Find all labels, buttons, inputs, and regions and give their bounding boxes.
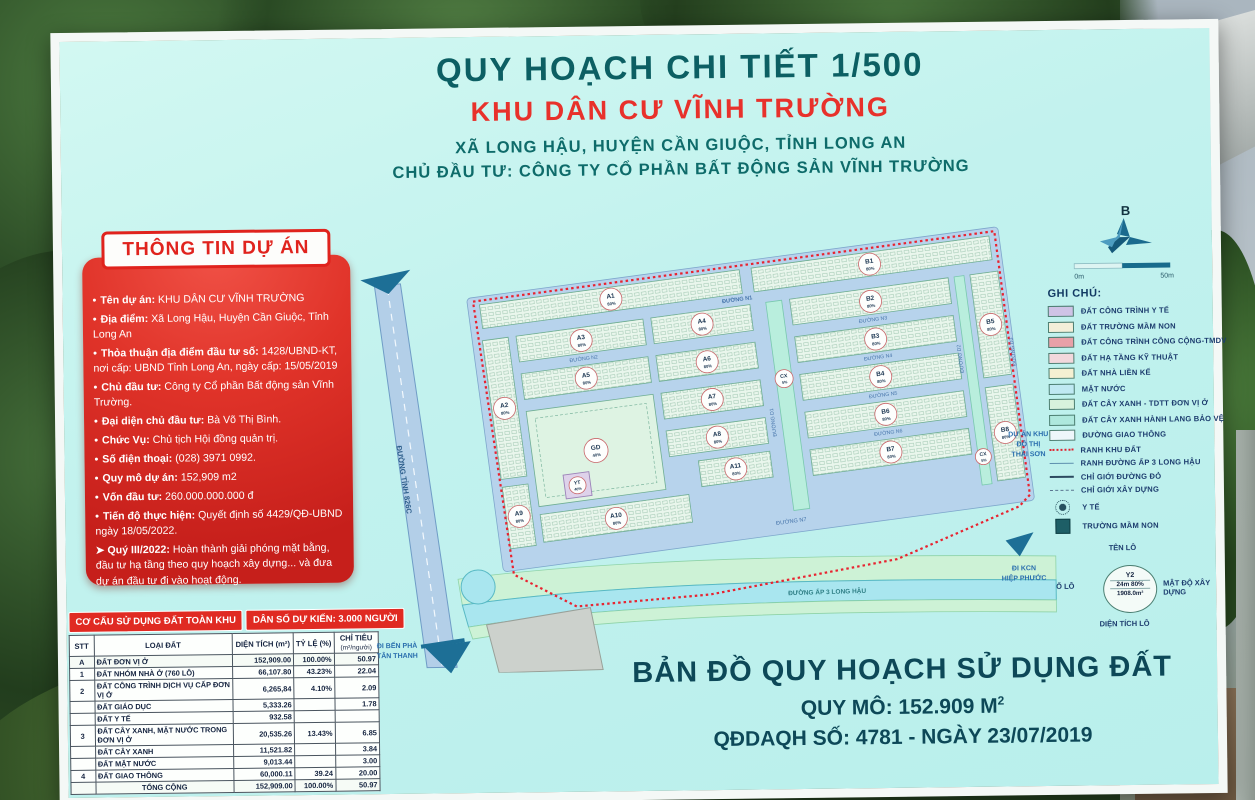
svg-text:CX: CX bbox=[780, 373, 788, 380]
north-and-scale: B 0m 50m bbox=[1059, 200, 1185, 284]
svg-text:A5: A5 bbox=[581, 372, 590, 380]
caption-line1: BẢN ĐỒ QUY HOẠCH SỬ DỤNG ĐẤT bbox=[612, 650, 1192, 690]
bullet-icon: • bbox=[93, 295, 97, 307]
legend-item: ĐẤT TRƯỜNG MẦM NON bbox=[1048, 319, 1233, 332]
info-item: •Địa điểm: Xã Long Hậu, Huyện Cần Giuộc,… bbox=[93, 310, 341, 343]
info-item: •Thỏa thuận địa điểm đầu tư số: 1428/UBN… bbox=[93, 344, 341, 377]
legend-item: RANH ĐƯỜNG ẤP 3 LONG HẬU bbox=[1050, 457, 1235, 468]
svg-text:B7: B7 bbox=[886, 445, 895, 453]
pole-right bbox=[1236, 430, 1255, 800]
bullet-icon: • bbox=[94, 454, 98, 466]
info-item: •Chủ đầu tư: Công ty Cổ phần Bất động sả… bbox=[94, 378, 342, 411]
title-line1: QUY HOẠCH CHI TIẾT 1/500 bbox=[350, 44, 1010, 90]
bullet-icon: • bbox=[95, 511, 99, 523]
legend-title: GHI CHÚ: bbox=[1048, 286, 1233, 300]
svg-text:B1: B1 bbox=[865, 258, 874, 266]
north-arrow-icon bbox=[1100, 218, 1152, 254]
legend-item: CHỈ GIỚI ĐƯỜNG ĐỎ bbox=[1050, 470, 1235, 481]
info-item: •Tiến độ thực hiện: Quyết định số 4429/Q… bbox=[95, 507, 343, 540]
title-line2: KHU DÂN CƯ VĨNH TRƯỜNG bbox=[350, 90, 1010, 129]
title-line3: XÃ LONG HẬU, HUYỆN CẦN GIUỘC, TỈNH LONG … bbox=[351, 132, 1011, 159]
legend-item: ĐẤT NHÀ LIỀN KẾ bbox=[1048, 366, 1233, 379]
north-label: B bbox=[1121, 203, 1131, 218]
svg-text:A9: A9 bbox=[514, 510, 523, 518]
land-table: STT LOẠI ĐẤT DIỆN TÍCH (m²) TỶ LỆ (%) CH… bbox=[69, 631, 381, 795]
svg-text:B3: B3 bbox=[871, 332, 880, 340]
title-line4: CHỦ ĐẦU TƯ: CÔNG TY CỔ PHẦN BẤT ĐỘNG SẢN… bbox=[351, 156, 1011, 183]
bullet-icon: • bbox=[93, 348, 97, 360]
road-arrow-up-icon bbox=[360, 270, 410, 295]
svg-text:A6: A6 bbox=[702, 355, 711, 363]
map-caption: BẢN ĐỒ QUY HOẠCH SỬ DỤNG ĐẤT QUY MÔ: 152… bbox=[612, 650, 1193, 753]
info-item: •Tên dự án: KHU DÂN CƯ VĨNH TRƯỜNG bbox=[93, 291, 341, 309]
legend-item: TRƯỜNG MẦM NON bbox=[1050, 517, 1235, 534]
svg-text:ĐÔ THỊ: ĐÔ THỊ bbox=[1016, 439, 1040, 448]
svg-text:A1: A1 bbox=[606, 293, 615, 301]
legend-item: ĐẤT HẠ TẦNG KỸ THUẬT bbox=[1048, 350, 1233, 363]
table-title-left: CƠ CẤU SỬ DỤNG ĐẤT TOÀN KHU bbox=[68, 610, 243, 633]
land-use-table: CƠ CẤU SỬ DỤNG ĐẤT TOÀN KHU DÂN SỐ DỰ KI… bbox=[68, 608, 380, 795]
table-total-row: TỔNG CỘNG152,909.00100.00%50.97 bbox=[71, 779, 380, 795]
legend-item: Y TẾ bbox=[1050, 497, 1235, 514]
info-item: •Số điện thoại: (028) 3971 0992. bbox=[94, 450, 342, 468]
caption-line2: QUY MÔ: 152.909 M2 bbox=[612, 691, 1192, 723]
svg-text:THÁI SƠN: THÁI SƠN bbox=[1011, 449, 1045, 458]
legend-item: ĐẤT CÔNG TRÌNH CÔNG CỘNG-TMDV bbox=[1048, 335, 1233, 348]
table-title-bar: CƠ CẤU SỬ DỤNG ĐẤT TOÀN KHU DÂN SỐ DỰ KI… bbox=[68, 608, 378, 633]
bullet-icon: • bbox=[93, 314, 97, 326]
annotation-kcn: ĐI KCN bbox=[1012, 565, 1036, 572]
svg-text:B2: B2 bbox=[866, 295, 875, 303]
svg-text:A2: A2 bbox=[500, 402, 509, 410]
bullet-icon: • bbox=[94, 416, 98, 428]
lot-label-diagram: TÊN LÔ SỐ LÔ MẬT ĐỘ XÂY DỰNG DIỆN TÍCH L… bbox=[1051, 542, 1237, 636]
svg-text:B6: B6 bbox=[881, 408, 890, 416]
project-info-header: THÔNG TIN DỰ ÁN bbox=[101, 229, 330, 270]
bullet-icon: • bbox=[95, 492, 99, 504]
legend-item: RANH KHU ĐẤT bbox=[1049, 443, 1234, 454]
svg-text:A7: A7 bbox=[707, 393, 716, 401]
caption-line3: QĐDAQH SỐ: 4781 - NGÀY 23/07/2019 bbox=[613, 722, 1193, 753]
bullet-icon: • bbox=[94, 435, 98, 447]
info-item: •Đại diện chủ đầu tư: Bà Võ Thị Bình. bbox=[94, 412, 342, 430]
legend-item: ĐẤT CÂY XANH HÀNH LANG BẢO VỆ bbox=[1049, 412, 1234, 425]
svg-text:A4: A4 bbox=[697, 318, 706, 326]
legend-item: ĐẤT CÂY XANH - TDTT ĐƠN VỊ Ở bbox=[1049, 397, 1234, 410]
bullet-icon: • bbox=[94, 382, 98, 394]
project-info-box: THÔNG TIN DỰ ÁN •Tên dự án: KHU DÂN CƯ V… bbox=[82, 229, 354, 586]
scale-bar: 0m 50m bbox=[1074, 262, 1174, 280]
svg-text:B5: B5 bbox=[986, 318, 995, 326]
billboard-title: QUY HOẠCH CHI TIẾT 1/500 KHU DÂN CƯ VĨNH… bbox=[350, 44, 1012, 183]
lot-label-sample: Y2 24m 80% 1908.0m² bbox=[1103, 565, 1158, 614]
legend-item: CHỈ GIỚI XÂY DỰNG bbox=[1050, 484, 1235, 495]
project-info-list: •Tên dự án: KHU DÂN CƯ VĨNH TRƯỜNG •Địa … bbox=[93, 291, 345, 594]
info-item: •Vốn đầu tư: 260.000.000.000 đ bbox=[95, 488, 343, 506]
svg-text:A8: A8 bbox=[713, 431, 722, 439]
legend-item: MẶT NƯỚC bbox=[1049, 381, 1234, 394]
svg-text:50m: 50m bbox=[1160, 272, 1174, 279]
legend-item: ĐƯỜNG GIAO THÔNG bbox=[1049, 428, 1234, 441]
annotation-thai-son: DỰ ÁN KHU bbox=[1008, 429, 1048, 438]
billboard: QUY HOẠCH CHI TIẾT 1/500 KHU DÂN CƯ VĨNH… bbox=[50, 19, 1227, 800]
legend: GHI CHÚ: ĐẤT CÔNG TRÌNH Y TẾ ĐẤT TRƯỜNG … bbox=[1048, 286, 1237, 636]
photo-scene: { "title": { "line1": "QUY HOẠCH CHI TIẾ… bbox=[0, 0, 1255, 800]
svg-text:GD: GD bbox=[591, 444, 602, 452]
bullet-icon: • bbox=[95, 473, 99, 485]
info-item: •Quy mô dự án: 152,909 m2 bbox=[95, 469, 343, 487]
svg-text:0m: 0m bbox=[1074, 274, 1084, 281]
exit-arrow-kcn-icon bbox=[1005, 532, 1033, 556]
annotation-pha: ĐI BẾN PHÀ bbox=[377, 640, 418, 650]
master-plan-map: ĐƯỜNG TỈNH 826C ĐƯỜNG ẤP 3 LONG HẬU bbox=[353, 188, 1061, 675]
svg-text:B4: B4 bbox=[876, 370, 885, 378]
svg-text:TÂN THANH: TÂN THANH bbox=[377, 651, 418, 660]
legend-item: ĐẤT CÔNG TRÌNH Y TẾ bbox=[1048, 304, 1233, 317]
info-item: ➤ Quý III/2022: Hoàn thành giải phóng mặ… bbox=[96, 541, 345, 589]
provincial-road-826c: ĐƯỜNG TỈNH 826C bbox=[360, 269, 471, 674]
info-item: •Chức Vụ: Chủ tịch Hội đồng quản trị. bbox=[94, 431, 342, 449]
svg-text:A3: A3 bbox=[576, 334, 585, 342]
